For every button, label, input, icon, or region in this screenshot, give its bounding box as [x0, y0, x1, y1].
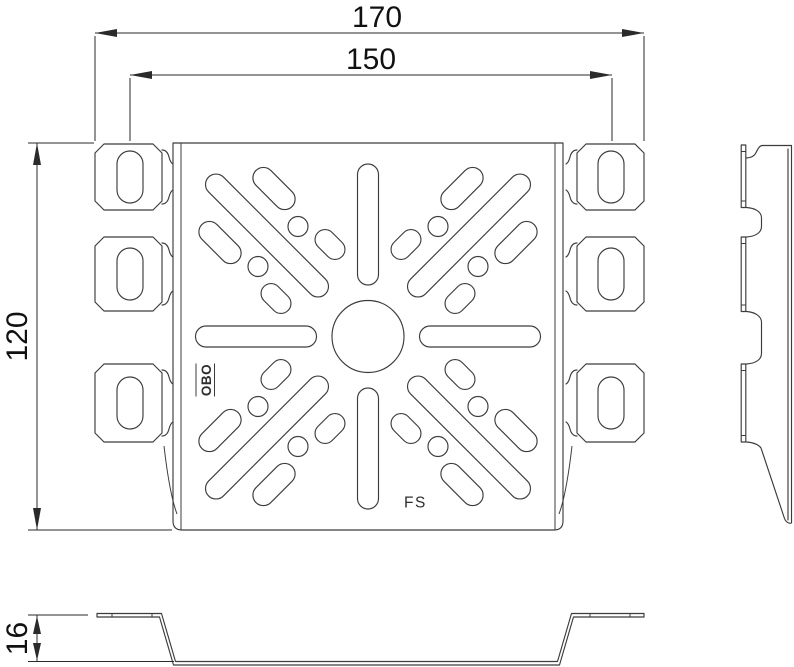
slot-hole	[358, 388, 379, 509]
hole-pattern	[195, 163, 542, 510]
dimension-label-16: 16	[1, 622, 34, 655]
round-hole	[428, 217, 448, 237]
tab	[95, 144, 162, 210]
right-tabs	[559, 144, 644, 514]
slot-hole	[437, 163, 488, 214]
dimension-label-170: 170	[352, 1, 402, 34]
arrowhead-top	[33, 143, 41, 165]
tab-neck	[566, 370, 577, 436]
dimension-label-150: 150	[346, 43, 396, 76]
slot-hole	[201, 372, 333, 504]
arrowhead-bottom	[33, 508, 41, 530]
side-tab-crease	[741, 152, 746, 436]
tab-slot	[598, 151, 624, 203]
obo-logo: OBO	[196, 364, 215, 397]
side-tab	[741, 145, 746, 208]
tab-neck	[162, 243, 173, 305]
side-profile-hook-top	[747, 146, 763, 159]
extension-line	[130, 78, 612, 141]
fs-marking: FS	[404, 495, 427, 512]
arrowhead-left	[130, 71, 152, 79]
tab-slot	[117, 151, 143, 203]
oval-hole	[387, 409, 425, 447]
oval-hole	[387, 225, 425, 263]
radial-slots	[196, 164, 541, 509]
oval-hole	[257, 355, 295, 393]
corner-flap-edge	[164, 446, 177, 514]
round-hole	[468, 397, 488, 417]
arrowhead-left	[95, 29, 117, 37]
arrowhead-right	[590, 71, 612, 79]
bottom-profile-crease	[112, 614, 630, 618]
front-view: OBO FS	[95, 143, 644, 530]
slot-hole	[403, 372, 535, 504]
diagonal-short-slots	[195, 163, 542, 510]
round-hole	[248, 397, 268, 417]
dimension-120: 120	[1, 143, 172, 530]
round-hole	[288, 217, 308, 237]
oval-hole	[257, 279, 295, 317]
plate-outline	[173, 143, 563, 530]
slot-hole	[358, 164, 379, 285]
slot-hole	[491, 217, 542, 268]
technical-drawing-page: OBO FS 170 150	[0, 0, 794, 667]
side-profile-bracket	[747, 312, 762, 365]
round-holes	[248, 217, 488, 457]
tab-neck	[162, 370, 173, 436]
corner-flap-edge	[559, 446, 572, 514]
slot-hole	[195, 405, 246, 456]
slot-hole	[195, 217, 246, 268]
dimension-16: 16	[1, 615, 174, 662]
side-tab	[741, 237, 746, 312]
arrowhead-bottom	[33, 643, 41, 661]
bottom-profile-upper	[97, 614, 644, 662]
dimension-label-120: 120	[1, 311, 34, 361]
technical-drawing: OBO FS 170 150	[0, 0, 794, 667]
oval-hole	[441, 355, 479, 393]
dimension-150: 150	[130, 43, 612, 141]
oval-hole	[311, 225, 349, 263]
tab-neck	[566, 243, 577, 305]
arrowhead-top	[33, 616, 41, 634]
bottom-profile-lower	[97, 617, 644, 665]
round-hole	[288, 437, 308, 457]
slot-hole	[249, 163, 300, 214]
oval-hole	[311, 409, 349, 447]
tab	[95, 364, 162, 442]
tab-slot	[598, 377, 624, 429]
small-oval-holes	[257, 225, 479, 447]
oval-hole	[441, 279, 479, 317]
center-hole	[332, 301, 404, 373]
slot-hole	[201, 170, 333, 302]
tab	[577, 144, 644, 210]
slot-hole	[491, 405, 542, 456]
tab-slot	[117, 377, 143, 429]
round-hole	[468, 257, 488, 277]
extension-line	[28, 615, 174, 662]
round-hole	[248, 257, 268, 277]
side-tab	[741, 364, 746, 442]
tab-slot	[598, 248, 624, 300]
bottom-profile-endcaps	[97, 614, 644, 618]
left-tabs	[95, 144, 177, 514]
side-profile-bracket	[747, 208, 762, 238]
obo-logo-text: OBO	[199, 364, 214, 396]
tab-slot	[117, 248, 143, 300]
side-profile-foot	[747, 442, 791, 523]
slot-hole	[420, 326, 541, 347]
arrowhead-right	[622, 29, 644, 37]
slot-hole	[249, 459, 300, 510]
extension-line	[28, 143, 172, 530]
side-view	[741, 145, 791, 523]
tab	[577, 364, 644, 442]
slot-hole	[403, 170, 535, 302]
tab-neck	[162, 150, 173, 204]
diagonal-long-slots	[201, 170, 535, 504]
slot-hole	[196, 326, 317, 347]
slot-hole	[437, 459, 488, 510]
round-hole	[428, 437, 448, 457]
tab-neck	[566, 150, 577, 204]
bottom-view	[97, 614, 644, 666]
